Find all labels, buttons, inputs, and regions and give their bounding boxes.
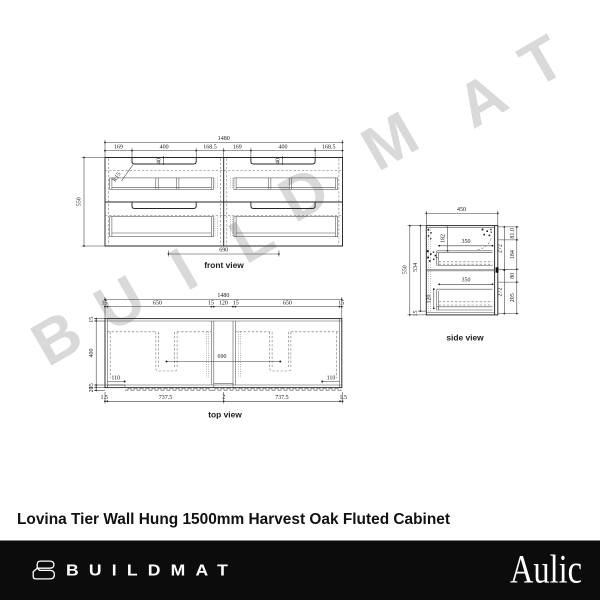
svg-text:350: 350 [462, 239, 471, 245]
svg-text:690: 690 [218, 354, 227, 360]
svg-text:15: 15 [208, 300, 214, 306]
svg-text:1480: 1480 [217, 293, 229, 299]
svg-text:15: 15 [338, 300, 344, 306]
svg-text:737.5: 737.5 [275, 395, 289, 401]
svg-text:110: 110 [111, 375, 120, 381]
svg-text:182: 182 [440, 234, 446, 243]
svg-text:1.5: 1.5 [101, 395, 109, 401]
svg-text:2: 2 [222, 395, 225, 401]
svg-text:184: 184 [510, 250, 516, 259]
svg-text:1480: 1480 [218, 136, 230, 142]
svg-text:690: 690 [219, 247, 228, 253]
svg-text:front view: front view [204, 260, 244, 270]
svg-text:168.5: 168.5 [203, 144, 217, 150]
svg-text:450: 450 [457, 207, 466, 213]
svg-text:120: 120 [427, 295, 433, 304]
svg-text:15: 15 [413, 311, 419, 317]
svg-text:Lovina Tier Wall Hung 1500mm H: Lovina Tier Wall Hung 1500mm Harvest Oak… [17, 511, 451, 528]
svg-text:169: 169 [233, 144, 242, 150]
svg-text:650: 650 [153, 300, 162, 306]
svg-text:15: 15 [102, 300, 108, 306]
svg-text:272: 272 [497, 244, 503, 253]
svg-text:550: 550 [402, 265, 408, 274]
svg-text:534: 534 [413, 263, 419, 272]
svg-text:Aulic: Aulic [510, 547, 582, 592]
svg-text:272: 272 [497, 288, 503, 297]
svg-text:350: 350 [462, 278, 471, 284]
svg-text:205: 205 [510, 293, 516, 302]
svg-text:40: 40 [157, 158, 163, 164]
svg-text:550: 550 [77, 197, 83, 206]
svg-text:81.0: 81.0 [510, 228, 516, 239]
svg-text:400: 400 [279, 144, 288, 150]
svg-text:168.5: 168.5 [322, 144, 336, 150]
svg-text:BUILDMAT: BUILDMAT [66, 563, 238, 580]
svg-text:side view: side view [446, 333, 484, 343]
svg-text:400: 400 [160, 144, 169, 150]
svg-text:80: 80 [510, 273, 516, 279]
svg-text:169: 169 [114, 144, 123, 150]
svg-text:20: 20 [89, 386, 95, 392]
svg-text:110: 110 [327, 375, 336, 381]
svg-text:120: 120 [219, 300, 228, 306]
svg-text:400: 400 [89, 349, 95, 358]
svg-text:top view: top view [208, 410, 242, 420]
svg-text:1.5: 1.5 [339, 395, 347, 401]
svg-text:15: 15 [233, 300, 239, 306]
svg-text:15: 15 [89, 317, 95, 323]
svg-text:737.5: 737.5 [159, 395, 173, 401]
svg-text:40: 40 [276, 158, 282, 164]
svg-text:650: 650 [283, 300, 292, 306]
